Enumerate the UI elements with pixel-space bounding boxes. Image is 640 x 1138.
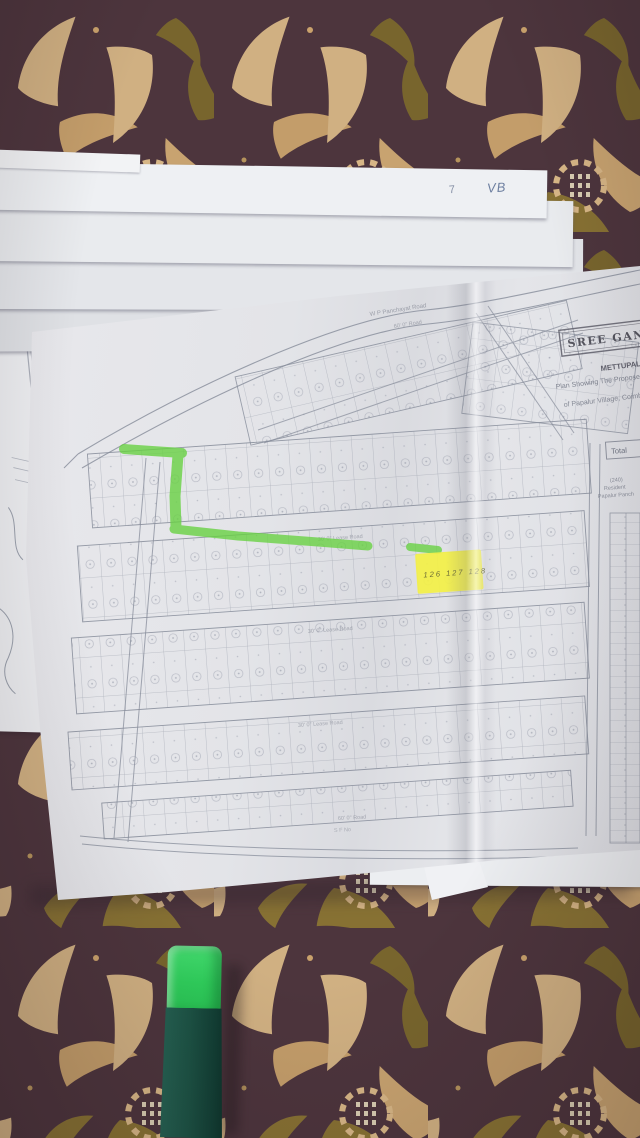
note-line-2: Resident: [604, 484, 627, 492]
crease-shading: [446, 258, 496, 908]
schedule-table: [610, 513, 640, 843]
total-label: Total: [611, 446, 628, 456]
highlighter-segment: [410, 547, 438, 550]
marker-cap: [167, 945, 222, 1012]
total-box: Total: [605, 439, 640, 459]
bottom-label-2: S F No: [334, 827, 351, 834]
map-drawing: Total (240) Resident Papalur Panch SREE …: [18, 258, 640, 908]
note-block: (240) Resident Papalur Panch: [598, 477, 634, 500]
top-road-sub: 60' 0" Road: [393, 320, 422, 330]
note-line-1: (240): [610, 477, 623, 484]
note-line-3: Papalur Panch: [598, 491, 634, 500]
photograph: { "colors": { "fabric_dark": "#4d353d", …: [0, 0, 640, 1138]
handwritten-initials: VB: [487, 179, 507, 195]
handwritten-mark: 7: [448, 184, 455, 196]
marker-body: [160, 1007, 225, 1138]
map-sheet: Total (240) Resident Papalur Panch SREE …: [18, 258, 640, 908]
marker-pen: [156, 941, 232, 1138]
